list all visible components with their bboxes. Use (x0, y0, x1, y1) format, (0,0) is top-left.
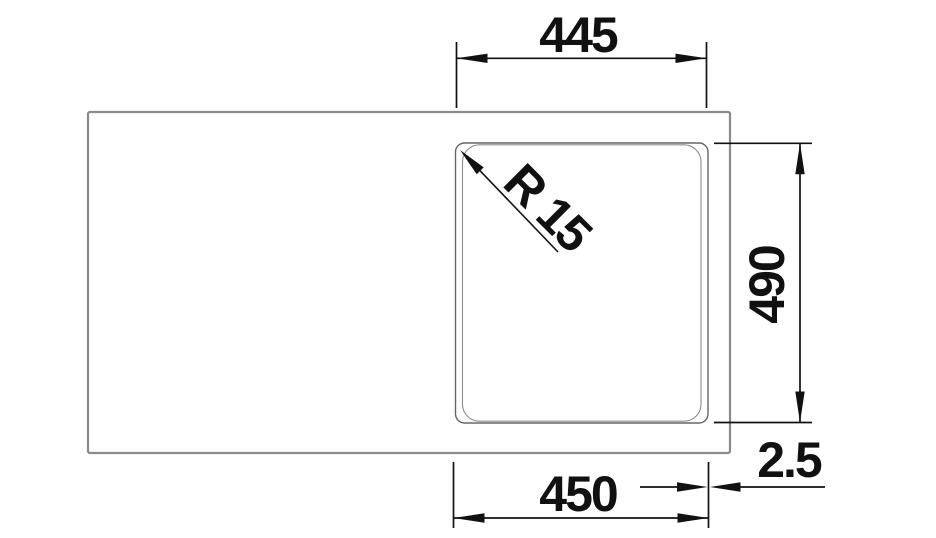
dimension-top-width: 445 (457, 7, 707, 108)
radius-callout: R 15 (460, 150, 603, 263)
dimension-value-top-width: 445 (539, 7, 618, 63)
arrowhead-down (795, 392, 804, 423)
arrowhead-corner (460, 150, 484, 174)
arrowhead-right (676, 54, 707, 63)
dimension-value-rim-thickness: 2.5 (757, 432, 822, 488)
arrowhead-pointing-right (677, 482, 708, 491)
dimension-bowl-depth: 490 (714, 143, 812, 422)
arrowhead-pointing-left (710, 482, 741, 491)
dimension-bottom-width: 450 (454, 462, 709, 528)
dimension-value-bowl-depth: 490 (739, 246, 795, 324)
dimension-value-bottom-width: 450 (539, 466, 617, 522)
arrowhead-left (457, 54, 488, 63)
sink-outline (88, 112, 730, 453)
bowl-inner-line (463, 145, 702, 421)
arrowhead-up (795, 143, 804, 174)
arrowhead-right (678, 513, 709, 522)
dimension-rim-thickness: 2.5 (640, 432, 825, 492)
radius-label: R 15 (493, 153, 602, 262)
arrowhead-left (454, 513, 485, 522)
technical-drawing: 445 490 450 2.5 (0, 0, 936, 538)
